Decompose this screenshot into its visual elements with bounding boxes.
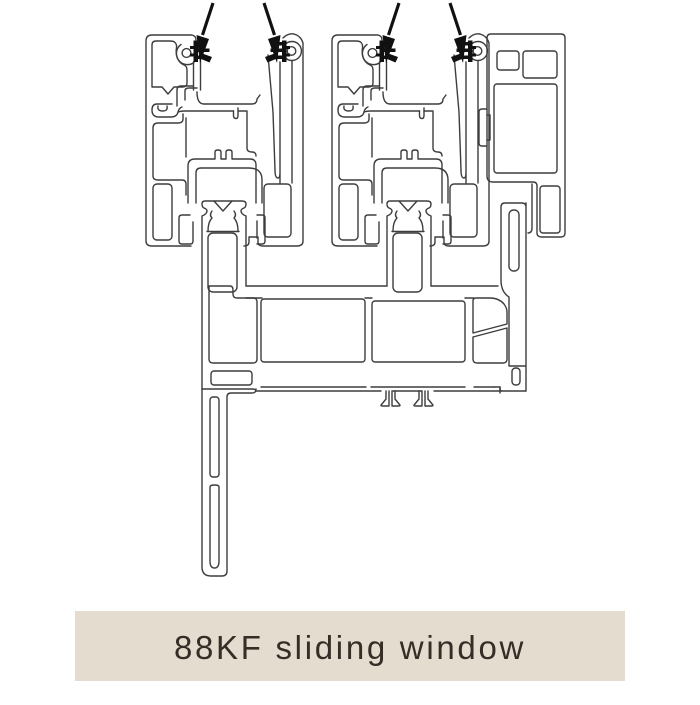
svg-text:88KF sliding window: 88KF sliding window: [174, 629, 526, 666]
